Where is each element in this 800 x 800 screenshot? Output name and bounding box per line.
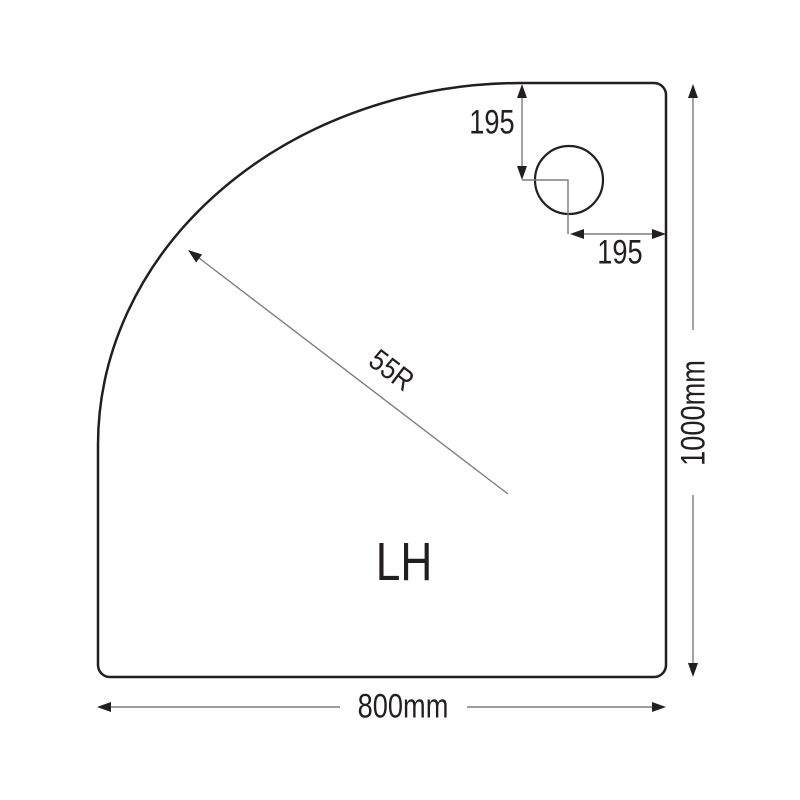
tray-orientation-label: LH [376,531,433,593]
arrow-up-left-icon [188,250,202,263]
waste-centre-leader-line [522,180,568,234]
technical-drawing-canvas: 195 195 55R LH 1000mm 800mm [0,0,800,800]
radius-leader-line [199,258,508,494]
waste-vertical-offset-dimension [517,84,527,180]
arrow-left-icon [570,229,584,239]
arrow-up-icon [517,84,527,98]
width-dimension-label: 800mm [358,688,449,727]
arrow-left-icon [97,702,111,712]
arrow-up-icon [688,84,698,98]
radius-dimension [188,250,508,494]
height-dimension-label: 1000mm [675,360,714,466]
arrow-right-icon [652,229,666,239]
waste-vertical-offset-label: 195 [469,104,514,143]
arrow-down-icon [688,663,698,677]
arrow-right-icon [652,702,666,712]
waste-horizontal-offset-label: 195 [597,234,642,273]
arrow-down-icon [517,166,527,180]
